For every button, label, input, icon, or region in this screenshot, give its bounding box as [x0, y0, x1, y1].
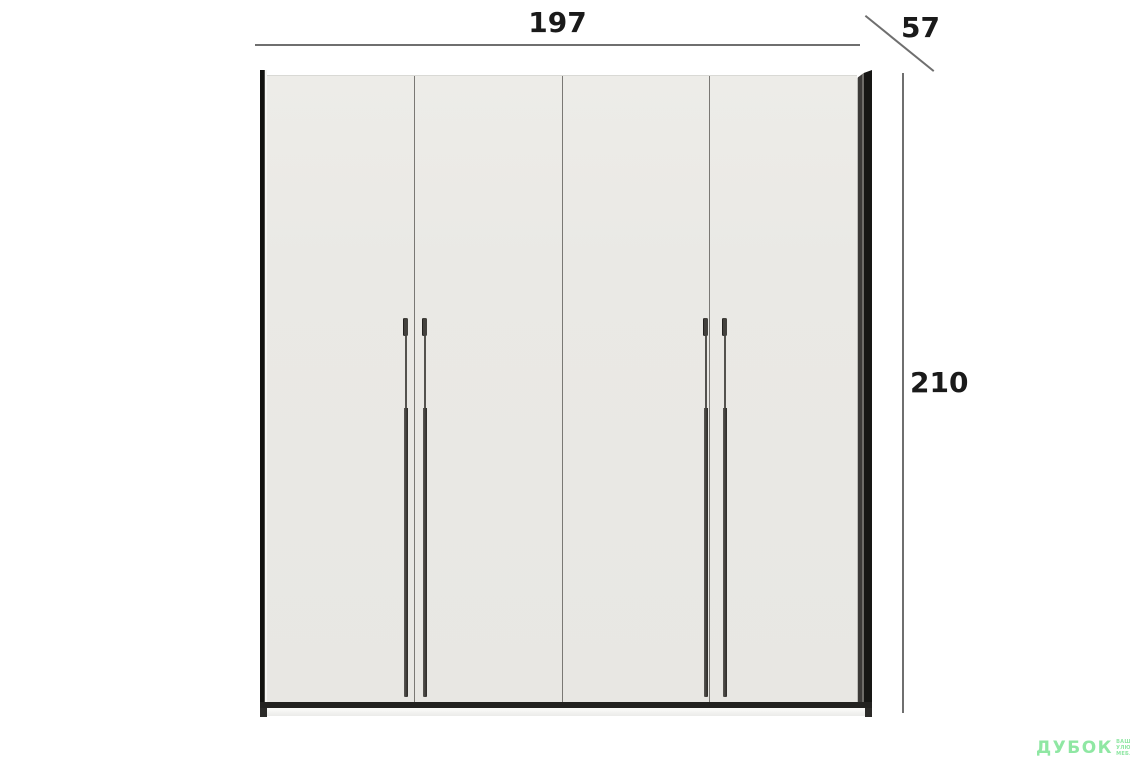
product-image: 197 57 210 ДУБОК ВАШІ УЛЮБЛЕНІ МЕБЛІ: [0, 0, 1130, 773]
wardrobe-doors: [267, 75, 857, 702]
handle-rod-thin: [424, 336, 426, 408]
door-handle-2: [422, 318, 427, 697]
brand-logo-text: ДУБОК: [1036, 740, 1113, 757]
brand-watermark: ДУБОК ВАШІ УЛЮБЛЕНІ МЕБЛІ: [1036, 740, 1130, 757]
door-handle-4: [722, 318, 727, 697]
width-dimension-label: 197: [255, 9, 860, 37]
wardrobe-right-side-panel: [857, 70, 872, 708]
handle-rod-thick: [704, 408, 708, 697]
handle-cap: [422, 318, 427, 336]
door-handle-3: [703, 318, 708, 697]
handle-cap: [703, 318, 708, 336]
handle-rod-thick: [404, 408, 408, 697]
wardrobe-door-1: [267, 76, 415, 702]
handle-rod-thick: [723, 408, 727, 697]
height-dimension-label: 210: [910, 369, 968, 397]
handle-rod-thin: [705, 336, 707, 408]
width-dimension: 197: [255, 9, 860, 37]
depth-dimension-label: 57: [901, 14, 940, 42]
brand-tagline: ВАШІ УЛЮБЛЕНІ МЕБЛІ: [1116, 740, 1130, 757]
height-dimension-line: [902, 73, 904, 713]
brand-tagline-line: МЕБЛІ: [1116, 752, 1130, 758]
wardrobe-foot-right: [865, 708, 872, 717]
handle-rod-thick: [423, 408, 427, 697]
handle-rod-thin: [724, 336, 726, 408]
handle-cap: [722, 318, 727, 336]
wardrobe-door-3: [563, 76, 711, 702]
handle-rod-thin: [405, 336, 407, 408]
wardrobe-door-4: [710, 76, 857, 702]
wardrobe-foot-left: [260, 708, 267, 717]
wardrobe: [260, 70, 872, 718]
wardrobe-door-2: [415, 76, 563, 702]
wardrobe-plinth: [267, 708, 865, 716]
wardrobe-left-edge: [260, 70, 267, 708]
door-handle-1: [403, 318, 408, 697]
handle-cap: [403, 318, 408, 336]
width-dimension-line: [255, 44, 860, 46]
